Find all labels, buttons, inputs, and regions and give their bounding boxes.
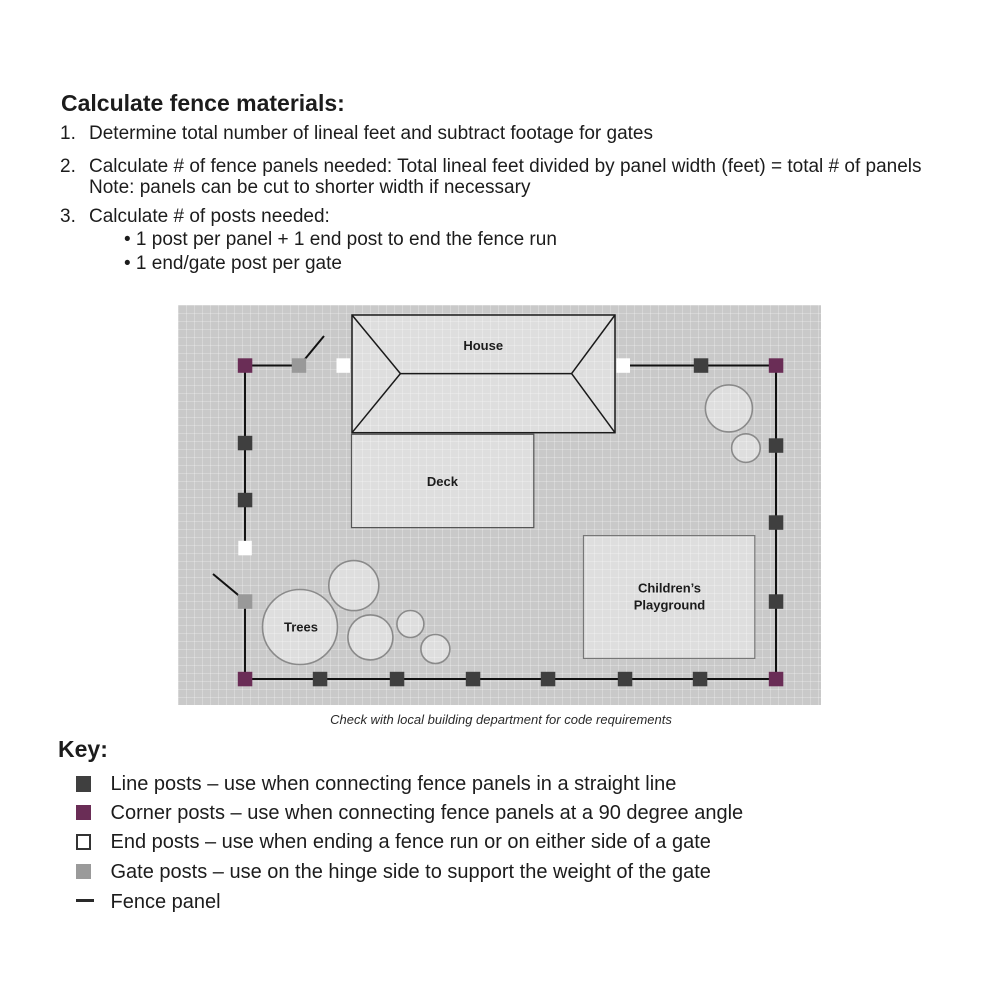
- svg-text:House: House: [463, 338, 503, 353]
- svg-text:Deck: Deck: [427, 474, 459, 489]
- svg-text:Children’s: Children’s: [638, 581, 701, 596]
- svg-text:Trees: Trees: [284, 620, 318, 635]
- svg-text:Playground: Playground: [634, 598, 706, 613]
